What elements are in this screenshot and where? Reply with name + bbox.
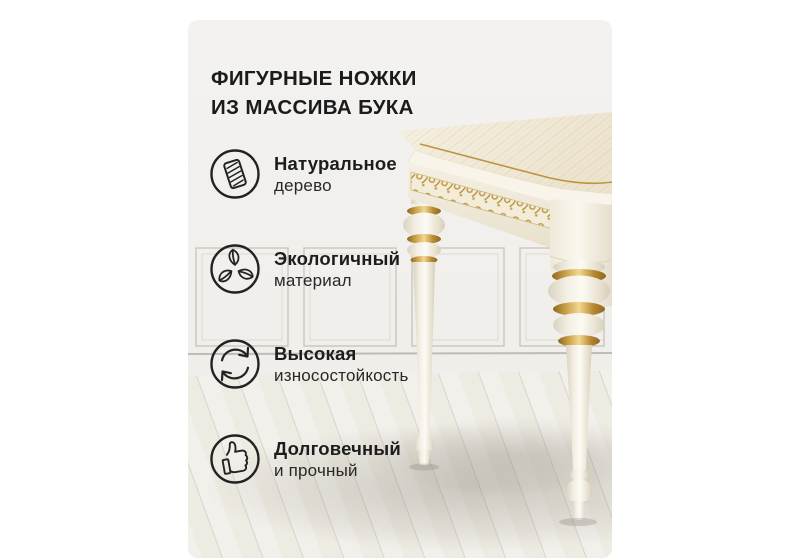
- feature-eco-material: Экологичный материал: [209, 243, 400, 295]
- title-line-1: ФИГУРНЫЕ НОЖКИ: [211, 65, 417, 94]
- feature-line-1: Натуральное: [274, 153, 397, 175]
- wood-plank-icon: [209, 148, 261, 200]
- feature-text: Высокая износостойкость: [274, 343, 409, 386]
- feature-line-2: дерево: [274, 175, 397, 196]
- feature-line-1: Экологичный: [274, 248, 400, 270]
- eco-leaves-icon: [209, 243, 261, 295]
- feature-text: Долговечный и прочный: [274, 438, 401, 481]
- product-promo-screenshot: ФИГУРНЫЕ НОЖКИ ИЗ МАССИВА БУКА: [0, 0, 800, 560]
- feature-text: Натуральное дерево: [274, 153, 397, 196]
- title-line-2: ИЗ МАССИВА БУКА: [211, 94, 417, 123]
- feature-durable: Долговечный и прочный: [209, 433, 401, 485]
- feature-wear-resistance: Высокая износостойкость: [209, 338, 409, 390]
- sync-arrows-icon: [209, 338, 261, 390]
- feature-text: Экологичный материал: [274, 248, 400, 291]
- feature-natural-wood: Натуральное дерево: [209, 148, 397, 200]
- page-title: ФИГУРНЫЕ НОЖКИ ИЗ МАССИВА БУКА: [211, 65, 417, 122]
- feature-line-1: Высокая: [274, 343, 409, 365]
- feature-line-2: материал: [274, 270, 400, 291]
- feature-line-1: Долговечный: [274, 438, 401, 460]
- promo-card: ФИГУРНЫЕ НОЖКИ ИЗ МАССИВА БУКА: [188, 20, 612, 558]
- thumbs-up-icon: [209, 433, 261, 485]
- feature-line-2: износостойкость: [274, 365, 409, 386]
- feature-line-2: и прочный: [274, 460, 401, 481]
